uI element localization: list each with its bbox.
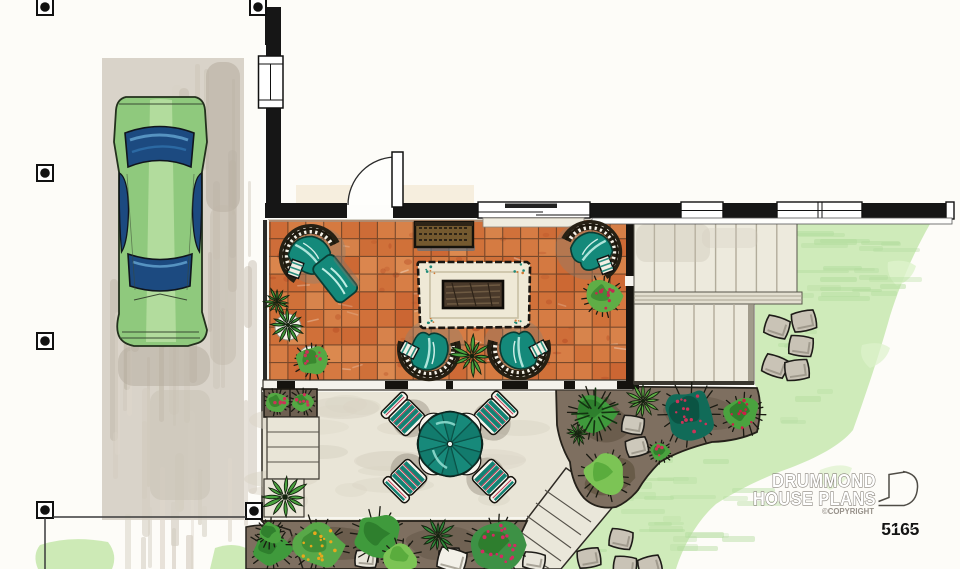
svg-text:HOUSE PLANS: HOUSE PLANS: [753, 488, 876, 509]
svg-text:5165: 5165: [881, 519, 919, 539]
svg-text:©COPYRIGHT: ©COPYRIGHT: [822, 507, 874, 516]
